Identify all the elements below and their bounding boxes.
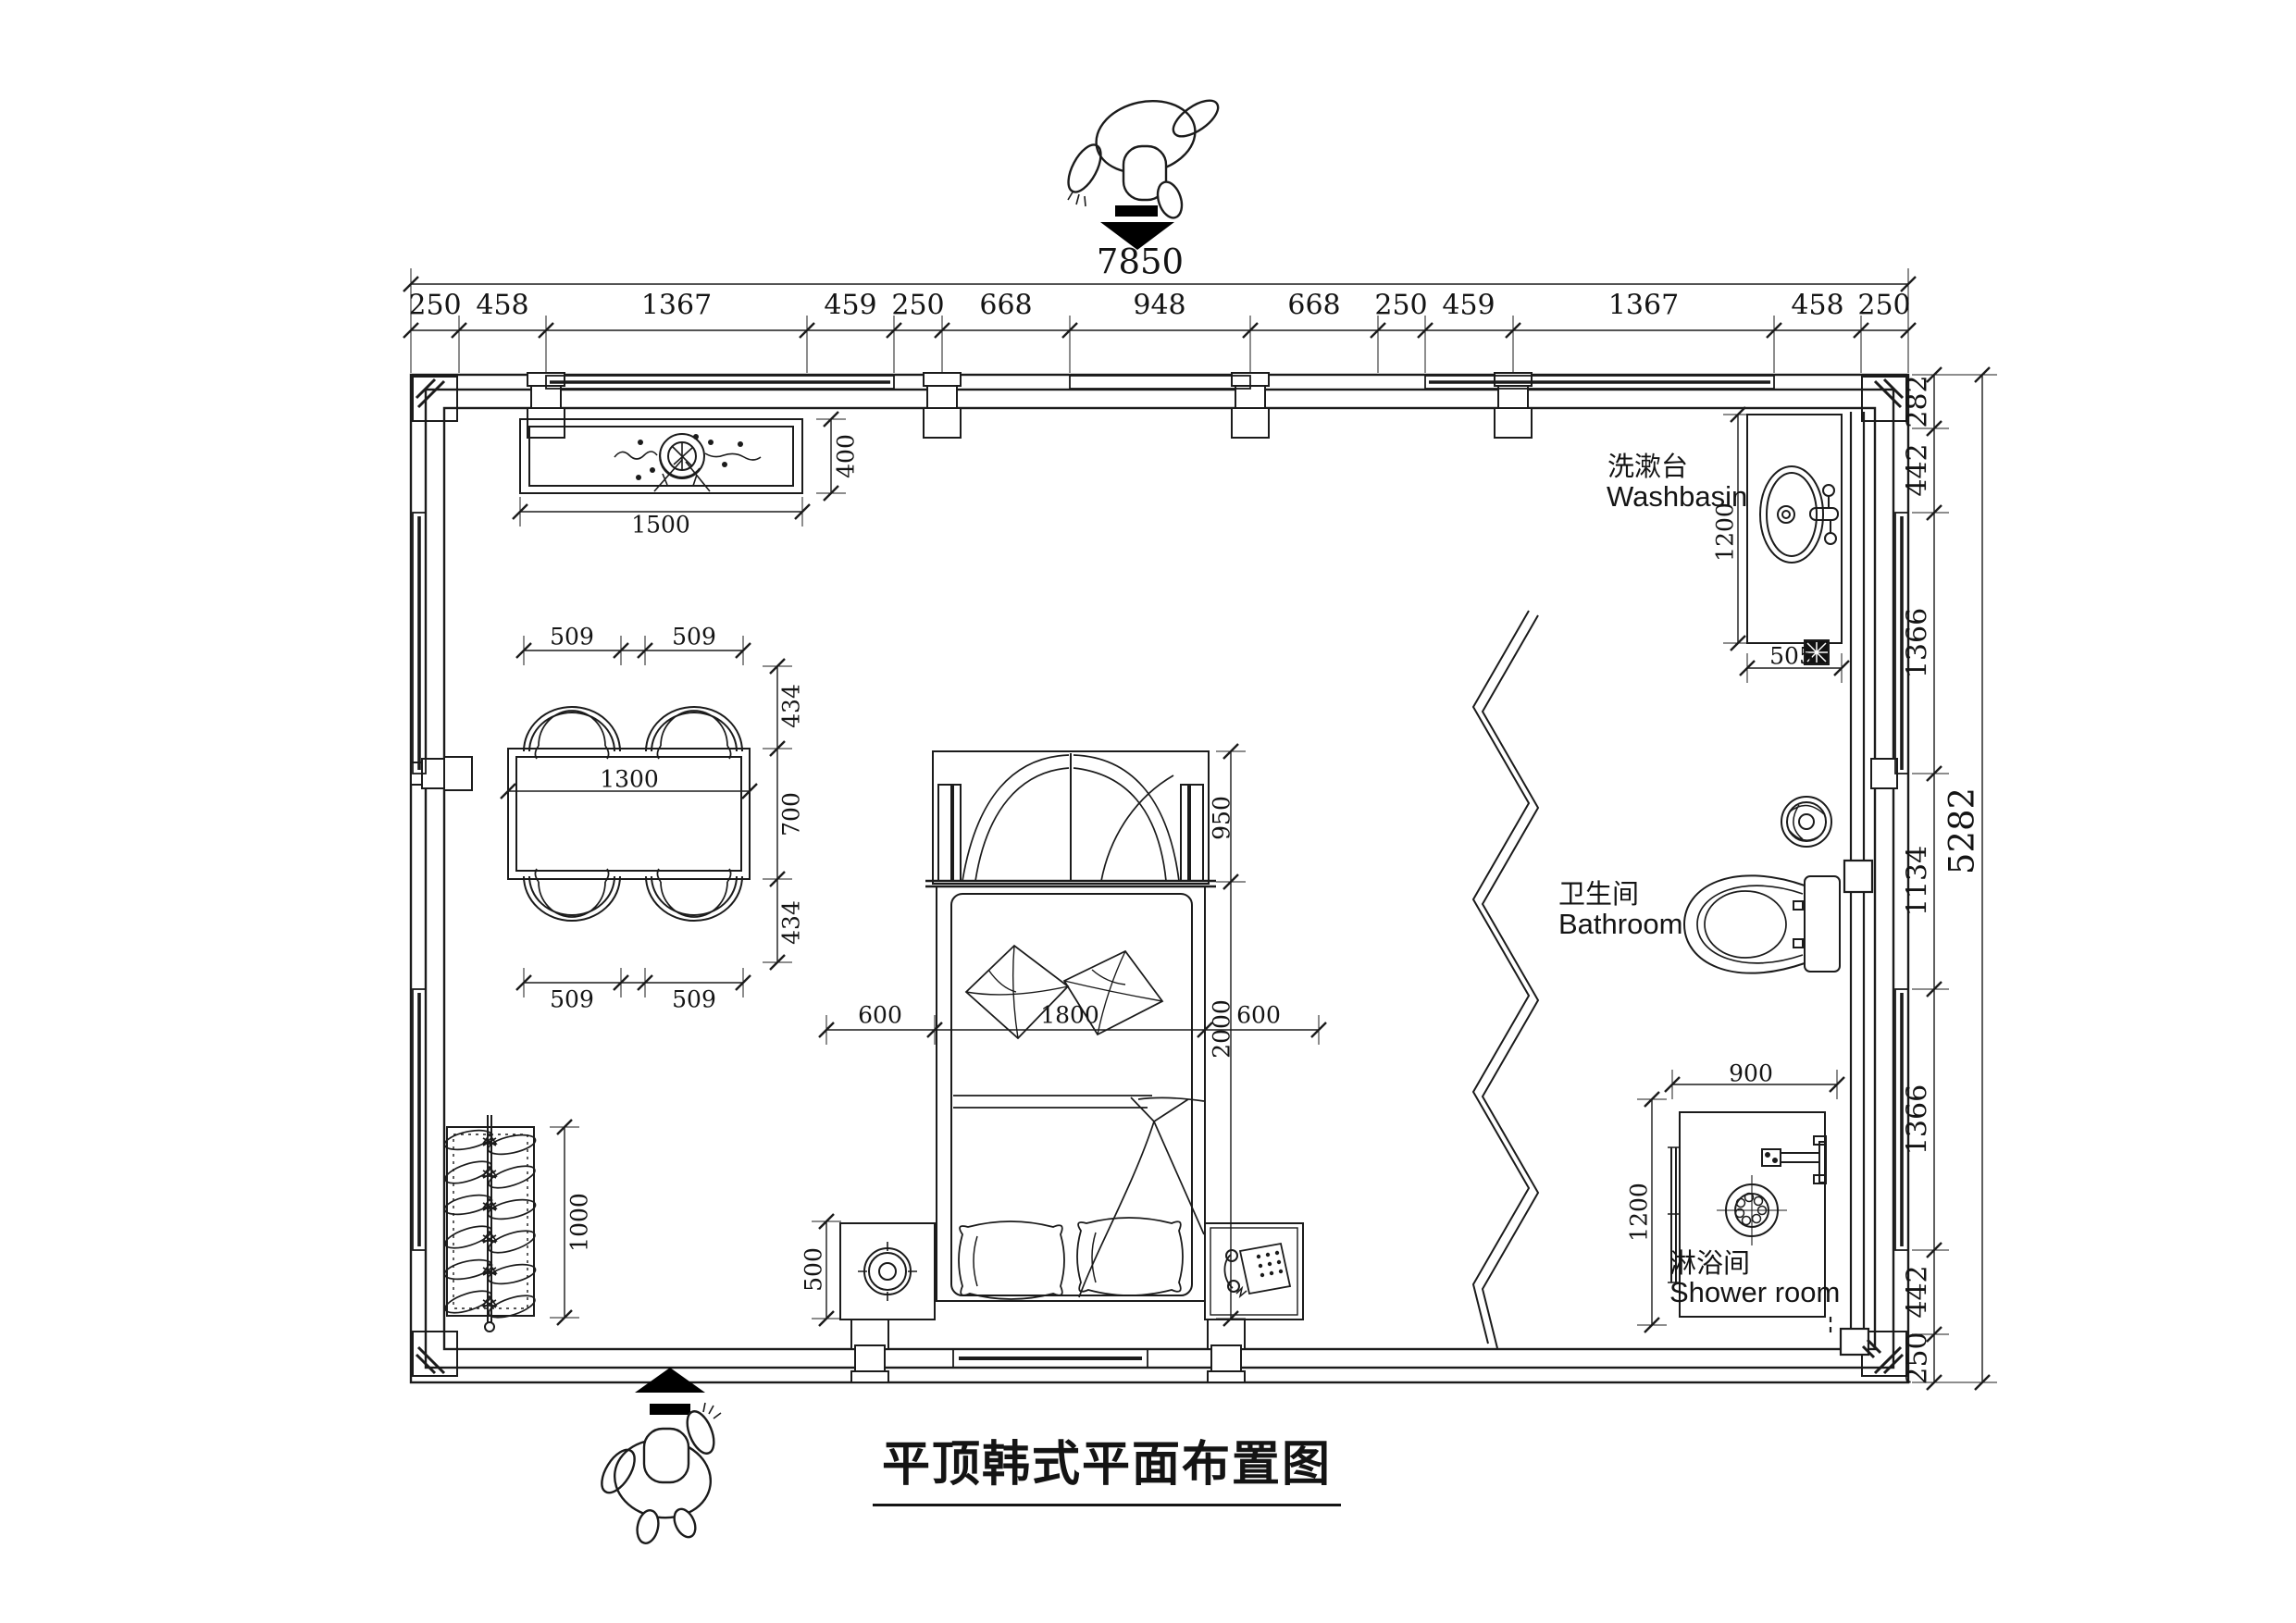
dim-nightstand-left: 600 <box>858 1002 902 1029</box>
dim-console-depth: 400 <box>833 434 860 478</box>
dim-shower-width: 900 <box>1729 1060 1773 1087</box>
folding-door <box>1473 611 1538 1348</box>
dim-top-7: 668 <box>1287 290 1340 322</box>
dim-top-6: 948 <box>1133 290 1185 322</box>
dim-nightstand-depth: 500 <box>800 1247 827 1292</box>
dim-top-10: 1367 <box>1608 290 1679 322</box>
dim-top-8: 250 <box>1374 290 1427 322</box>
label-bathroom-en: Bathroom <box>1558 908 1682 941</box>
dim-nightstand-right: 600 <box>1236 1002 1281 1029</box>
dim-table-length: 1300 <box>600 766 659 793</box>
dim-top-12: 250 <box>1857 290 1910 322</box>
label-washbasin-zh: 洗漱台 <box>1607 445 1688 484</box>
dim-top-3: 459 <box>824 290 876 322</box>
dining-table <box>508 707 750 921</box>
drawing-title: 平顶韩式平面布置图 <box>873 1425 1341 1506</box>
dim-bed-width: 1800 <box>1040 1002 1099 1029</box>
dim-top-4: 250 <box>891 290 944 322</box>
person-figure-bottom <box>595 1403 721 1545</box>
label-shower-en: Shower room <box>1669 1276 1840 1309</box>
dim-chair-width-br: 509 <box>672 986 716 1013</box>
dim-top-1: 458 <box>476 290 528 322</box>
dim-shower-depth: 1200 <box>1626 1183 1653 1242</box>
nightstand-right <box>1205 1223 1303 1319</box>
dim-right-total: 5282 <box>1942 787 1982 874</box>
telephone-icon <box>1224 1244 1290 1296</box>
washbasin-counter <box>1747 415 1842 664</box>
dim-top-5: 668 <box>979 290 1032 322</box>
clothes-rack <box>442 1115 537 1332</box>
toilet <box>1684 797 1840 973</box>
dim-right-2: 1366 <box>1902 608 1934 678</box>
label-shower-zh: 淋浴间 <box>1669 1242 1750 1281</box>
dim-chair-depth-top: 434 <box>778 684 805 728</box>
dim-chair-width-tr: 509 <box>672 624 716 650</box>
dim-bed-canopy: 950 <box>1209 796 1235 840</box>
dimension-lines <box>403 268 1997 1390</box>
bathroom-partition-wall <box>1831 412 1880 1357</box>
entry-arrow-bottom <box>635 1368 705 1415</box>
dim-right-3: 1134 <box>1902 846 1934 916</box>
dim-table-depth: 700 <box>778 792 805 836</box>
dim-washbasin-width: 505 <box>1769 643 1814 670</box>
label-bathroom-zh: 卫生间 <box>1558 873 1639 911</box>
dim-top-9: 459 <box>1442 290 1495 322</box>
dim-bed-length: 2000 <box>1209 999 1235 1059</box>
dim-right-5: 442 <box>1902 1265 1934 1318</box>
shower-head-icon <box>1762 1136 1826 1183</box>
dim-right-6: 250 <box>1902 1332 1934 1384</box>
dim-right-1: 442 <box>1902 443 1934 496</box>
nightstand-left <box>840 1223 935 1319</box>
dim-top-11: 458 <box>1791 290 1843 322</box>
dim-top-total: 7850 <box>1097 242 1184 282</box>
label-washbasin-en: Washbasin <box>1607 480 1747 514</box>
dim-console-width: 1500 <box>631 512 690 539</box>
dim-chair-width-bl: 509 <box>550 986 594 1013</box>
dim-chair-width-tl: 509 <box>550 624 594 650</box>
dim-right-4: 1366 <box>1902 1084 1934 1155</box>
dim-right-0: 282 <box>1902 375 1934 427</box>
dim-chair-depth-bottom: 434 <box>778 900 805 945</box>
dim-top-0: 250 <box>408 290 461 322</box>
floorplan-page: { "title": "平顶韩式平面布置图", "dims": { "top_t… <box>0 0 2296 1623</box>
dim-wardrobe-width: 1000 <box>566 1193 593 1252</box>
person-figure-top <box>1061 93 1223 221</box>
dim-top-2: 1367 <box>641 290 712 322</box>
